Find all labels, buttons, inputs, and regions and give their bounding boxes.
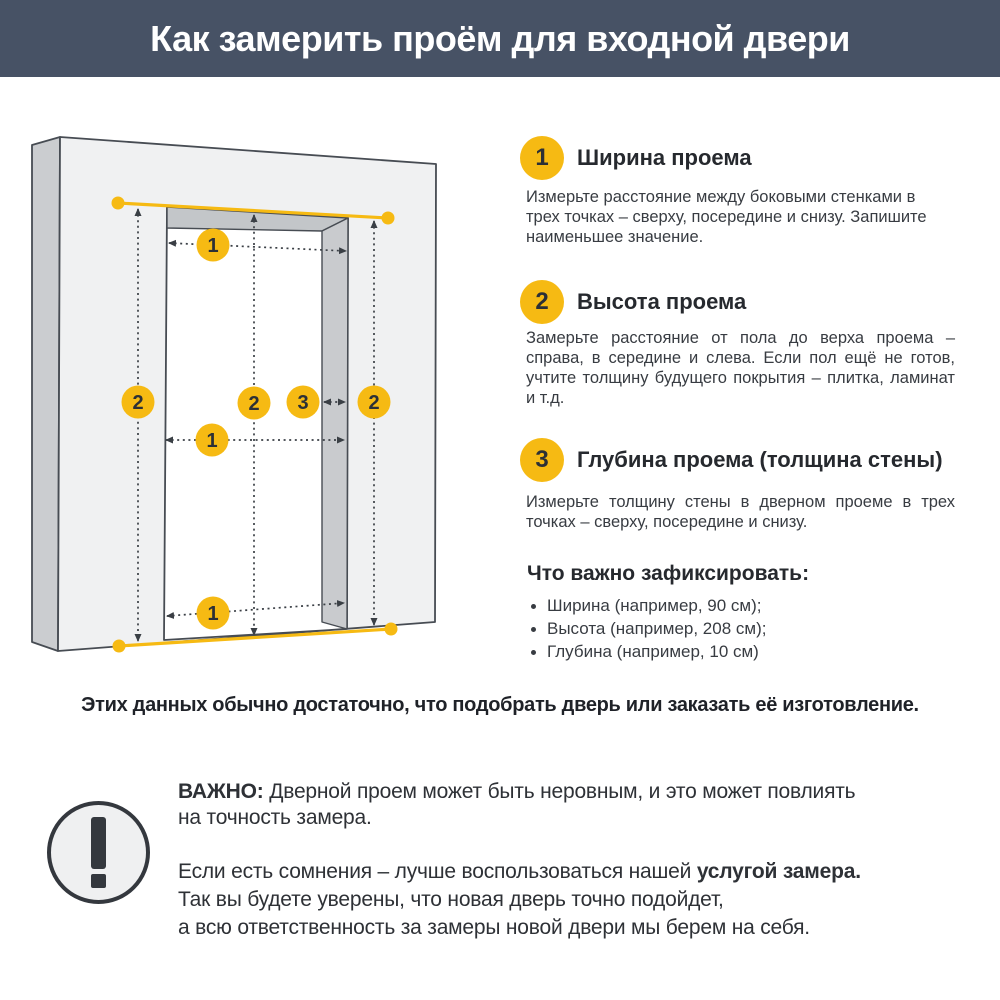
width-measure-line-top bbox=[169, 243, 346, 251]
record-title: Что важно зафиксировать: bbox=[527, 562, 809, 586]
record-list: Ширина (например, 90 см); Высота (наприм… bbox=[527, 596, 766, 665]
list-item-text: Глубина (например, 10 см) bbox=[547, 642, 759, 662]
list-item: Ширина (например, 90 см); bbox=[527, 596, 766, 619]
door-opening-diagram: 1 1 1 2 2 2 3 bbox=[0, 110, 510, 676]
wall-side-face bbox=[32, 137, 60, 651]
svg-text:1: 1 bbox=[207, 235, 218, 257]
svg-text:2: 2 bbox=[132, 392, 143, 414]
bullet-dot bbox=[531, 650, 536, 655]
step-title: Глубина проема (толщина стены) bbox=[577, 438, 943, 482]
summary-text: Этих данных обычно достаточно, что подоб… bbox=[0, 694, 1000, 717]
step-number-badge: 1 bbox=[520, 136, 564, 180]
svg-text:2: 2 bbox=[248, 393, 259, 415]
svg-text:3: 3 bbox=[297, 392, 308, 414]
warning-paragraph-1: ВАЖНО: Дверной проем может быть неровным… bbox=[178, 779, 855, 831]
exclamation-icon bbox=[47, 801, 150, 904]
depth-marker-badge: 3 bbox=[287, 386, 320, 419]
list-item-text: Высота (например, 208 см); bbox=[547, 619, 766, 639]
step-body: Измерьте толщину стены в дверном проеме … bbox=[526, 492, 955, 532]
list-item: Высота (например, 208 см); bbox=[527, 619, 766, 642]
warning-line: а всю ответственность за замеры новой дв… bbox=[178, 914, 861, 942]
warning-line: на точность замера. bbox=[178, 805, 855, 831]
step-title: Высота проема bbox=[577, 280, 746, 324]
bullet-dot bbox=[531, 627, 536, 632]
header-banner: Как замерить проём для входной двери bbox=[0, 0, 1000, 77]
step-number-badge: 2 bbox=[520, 280, 564, 324]
width-measure-line-bottom bbox=[167, 603, 344, 616]
opening-jamb-face bbox=[322, 218, 348, 629]
svg-text:1: 1 bbox=[206, 430, 217, 452]
list-item-text: Ширина (например, 90 см); bbox=[547, 596, 762, 616]
step-body: Измерьте расстояние между боковыми стенк… bbox=[526, 187, 934, 247]
height-marker-badge-right: 2 bbox=[358, 386, 391, 419]
step-number-badge: 3 bbox=[520, 438, 564, 482]
svg-text:2: 2 bbox=[368, 392, 379, 414]
warning-paragraph-2: Если есть сомнения – лучше воспользовать… bbox=[178, 858, 861, 942]
warning-line: Так вы будете уверены, что новая дверь т… bbox=[178, 886, 861, 914]
width-marker-badge-bottom: 1 bbox=[197, 597, 230, 630]
width-marker-badge-top: 1 bbox=[197, 229, 230, 262]
warning-label: ВАЖНО: bbox=[178, 780, 264, 803]
bullet-dot bbox=[531, 604, 536, 609]
step-body: Замерьте расстояние от пола до верха про… bbox=[526, 328, 955, 408]
height-marker-badge-center: 2 bbox=[238, 387, 271, 420]
step-title: Ширина проема bbox=[577, 136, 752, 180]
measure-service-label: услугой замера. bbox=[697, 860, 861, 883]
list-item: Глубина (например, 10 см) bbox=[527, 642, 766, 665]
svg-text:1: 1 bbox=[207, 603, 218, 625]
warning-line: Если есть сомнения – лучше воспользовать… bbox=[178, 858, 861, 886]
page-root: Как замерить проём для входной двери bbox=[0, 0, 1000, 1000]
height-marker-badge-left: 2 bbox=[122, 386, 155, 419]
width-marker-badge-middle: 1 bbox=[196, 424, 229, 457]
warning-line: ВАЖНО: Дверной проем может быть неровным… bbox=[178, 779, 855, 805]
page-title: Как замерить проём для входной двери bbox=[150, 18, 850, 60]
